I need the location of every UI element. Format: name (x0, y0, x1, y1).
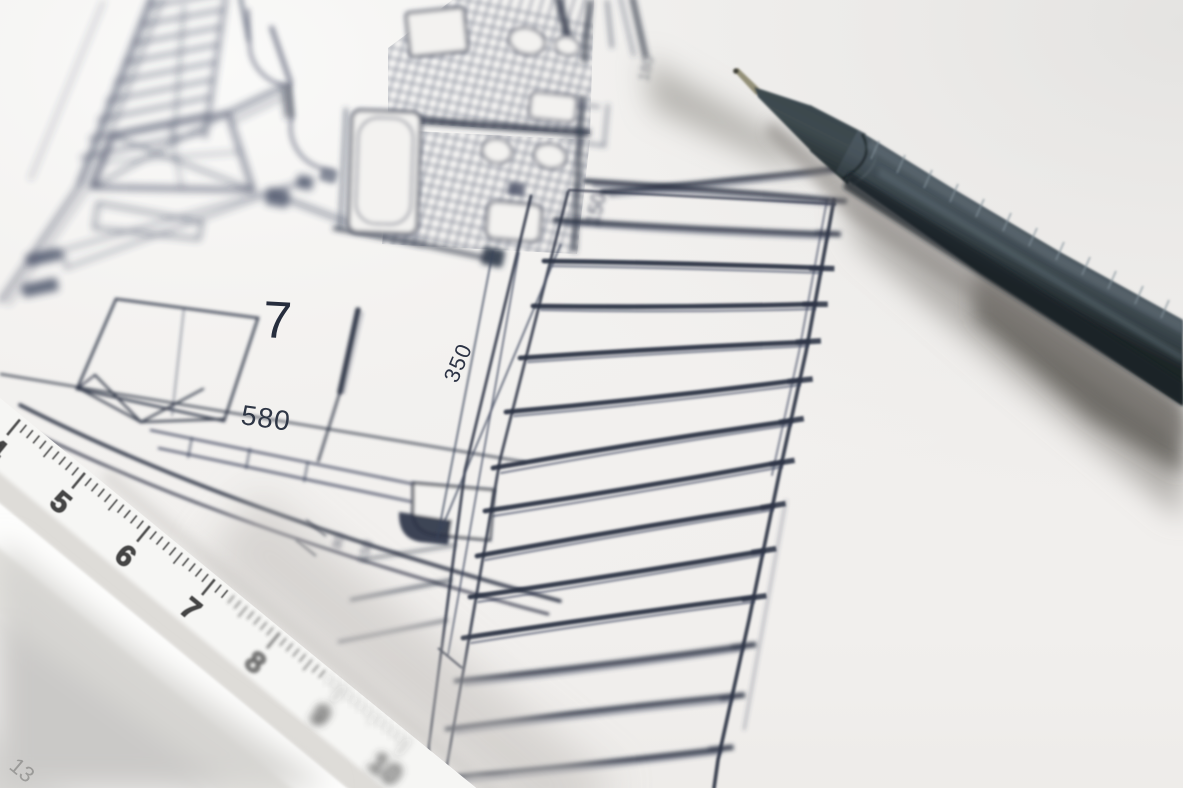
svg-text:7: 7 (261, 291, 293, 350)
